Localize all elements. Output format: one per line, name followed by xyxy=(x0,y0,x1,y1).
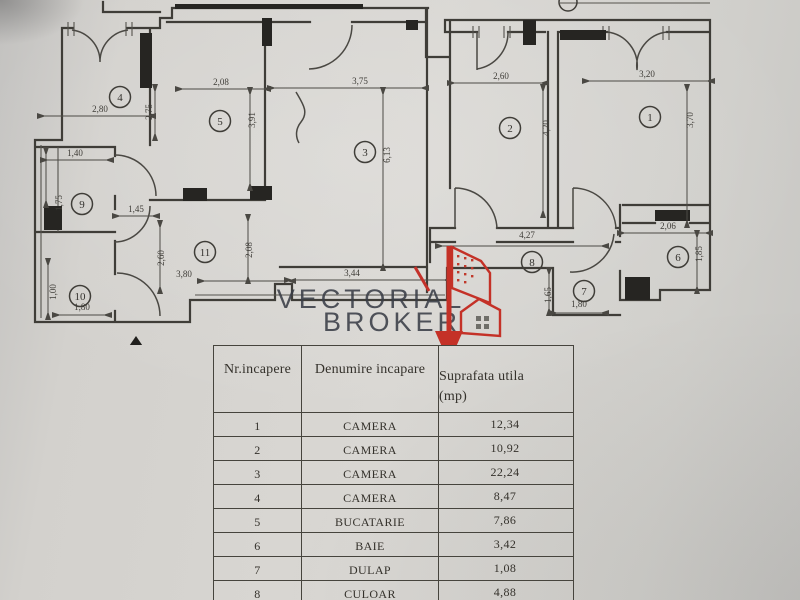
table-row: 7DULAP1,08 xyxy=(214,556,573,580)
room-number-cell: 6 xyxy=(214,533,302,556)
room-number-label: 9 xyxy=(79,199,85,211)
room-name-cell: CULOAR xyxy=(302,581,439,600)
room3-top-door-arc xyxy=(309,25,352,69)
watermark: VECTORIAL BROKER xyxy=(277,284,466,337)
table-row: 6BAIE3,42 xyxy=(214,532,573,556)
table-row: 3CAMERA22,24 xyxy=(214,460,573,484)
dimension-label: 3,44 xyxy=(344,268,360,278)
header-room-number: Nr.incapere xyxy=(214,346,302,412)
room-number-label: 2 xyxy=(507,123,513,135)
room-number-label: 8 xyxy=(529,257,535,269)
room-number-label: 7 xyxy=(581,286,587,298)
dimension-label: 2,06 xyxy=(660,221,676,231)
header-area-unit: (mp) xyxy=(439,387,467,407)
table-row: 4CAMERA8,47 xyxy=(214,484,573,508)
dimension-label: 4,27 xyxy=(519,230,535,240)
room-area-cell: 3,42 xyxy=(439,533,571,556)
dimension-label: 4,20 xyxy=(541,120,551,136)
room-number-label: 11 xyxy=(200,247,211,259)
room3-sketch-squiggle xyxy=(296,92,305,143)
wall-outline xyxy=(35,2,710,322)
room-name-cell: BUCATARIE xyxy=(302,509,439,532)
dimension-label: 1,45 xyxy=(128,204,144,214)
logo-house1-dots xyxy=(457,255,473,283)
room-name-cell: CAMERA xyxy=(302,437,439,460)
header-area: Suprafata utila (mp) xyxy=(439,346,571,412)
room-number-cell: 5 xyxy=(214,509,302,532)
dimension-label: 3,70 xyxy=(685,112,695,128)
room-number-circles: 1234567891011 xyxy=(70,87,689,307)
scanned-floor-plan-page: 1234567891011 2,802,751,401,751,451,001,… xyxy=(0,0,800,600)
dimension-label: 2,75 xyxy=(144,104,154,120)
logo-house2-windows xyxy=(476,316,489,329)
room-number-cell: 4 xyxy=(214,485,302,508)
room-area-cell: 1,08 xyxy=(439,557,571,580)
table-row: 8CULOAR4,88 xyxy=(214,580,573,600)
room-area-table: Nr.incapere Denumire incapare Suprafata … xyxy=(213,345,574,600)
dimension-label: 3,80 xyxy=(176,269,192,279)
room-name-cell: DULAP xyxy=(302,557,439,580)
header-area-label: Suprafata utila xyxy=(439,367,524,387)
dimension-label: 2,08 xyxy=(213,77,229,87)
hall-door-arc-1 xyxy=(115,155,156,196)
room-number-cell: 3 xyxy=(214,461,302,484)
room-name-cell: CAMERA xyxy=(302,485,439,508)
room-area-cell: 7,86 xyxy=(439,509,571,532)
room2-top-door-arc xyxy=(477,32,508,70)
table-body: 1CAMERA12,342CAMERA10,923CAMERA22,244CAM… xyxy=(214,412,573,600)
room-number-label: 3 xyxy=(362,147,368,159)
dimension-label: 1,80 xyxy=(571,299,587,309)
dimension-label: 1,00 xyxy=(48,284,58,300)
room-number-cell: 1 xyxy=(214,413,302,436)
room-number-label: 5 xyxy=(217,116,223,128)
dimension-label: 1,65 xyxy=(543,287,553,303)
room10-door-arc xyxy=(117,273,160,316)
room1-bottom-door-arc xyxy=(573,188,616,229)
room-area-cell: 22,24 xyxy=(439,461,571,484)
floor-plan-drawing: 1234567891011 2,802,751,401,751,451,001,… xyxy=(0,0,800,345)
room1-french-window-arc xyxy=(607,32,667,70)
room6-door-arc xyxy=(570,234,614,272)
table-row: 2CAMERA10,92 xyxy=(214,436,573,460)
logo-down-arrow xyxy=(435,331,463,345)
header-room-name: Denumire incapare xyxy=(302,346,439,412)
room-number-cell: 8 xyxy=(214,581,302,600)
room-number-label: 4 xyxy=(117,92,123,104)
dimension-label: 2,80 xyxy=(92,104,108,114)
dimension-labels: 2,802,751,401,751,451,001,802,603,802,08… xyxy=(48,69,704,312)
room-name-cell: CAMERA xyxy=(302,413,439,436)
dimension-label: 1,80 xyxy=(74,302,90,312)
room-area-cell: 8,47 xyxy=(439,485,571,508)
dimension-label: 2,60 xyxy=(493,71,509,81)
north-arrow xyxy=(119,336,153,345)
dimension-label: 3,75 xyxy=(352,76,368,86)
room-name-cell: CAMERA xyxy=(302,461,439,484)
dimension-label: 1,85 xyxy=(694,246,704,262)
table-row: 1CAMERA12,34 xyxy=(214,412,573,436)
dimension-label: 1,40 xyxy=(67,148,83,158)
room-number-cell: 2 xyxy=(214,437,302,460)
room2-bottom-door-arc xyxy=(455,188,497,229)
dimension-label: 3,20 xyxy=(639,69,655,79)
dimension-label: 3,91 xyxy=(247,112,257,128)
room-number-label: 6 xyxy=(675,252,681,264)
dimension-label: 1,75 xyxy=(54,195,64,211)
table-row: 5BUCATARIE7,86 xyxy=(214,508,573,532)
room-area-cell: 10,92 xyxy=(439,437,571,460)
room-number-label: 1 xyxy=(647,112,653,124)
room-number-label: 10 xyxy=(75,291,87,303)
room-area-cell: 12,34 xyxy=(439,413,571,436)
room-number-cell: 7 xyxy=(214,557,302,580)
room-name-cell: BAIE xyxy=(302,533,439,556)
dimension-label: 2,08 xyxy=(244,242,254,258)
door-arcs xyxy=(72,25,667,316)
cropped-room-circle xyxy=(559,0,577,11)
room-area-cell: 4,88 xyxy=(439,581,571,600)
room4-french-window-arc xyxy=(72,30,128,62)
dimension-label: 6,13 xyxy=(382,147,392,163)
dimension-label: 2,60 xyxy=(156,250,166,266)
table-header-row: Nr.incapere Denumire incapare Suprafata … xyxy=(214,346,573,412)
